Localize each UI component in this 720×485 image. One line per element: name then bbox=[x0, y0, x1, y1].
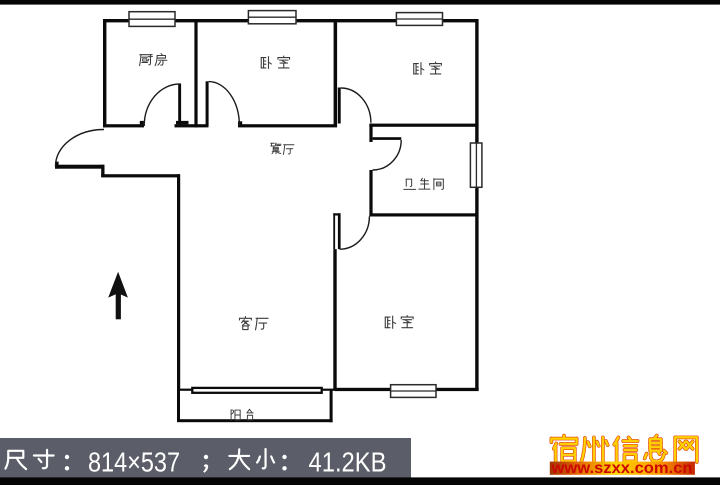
svg-text:814×537: 814×537 bbox=[88, 447, 180, 478]
svg-text:41.2KB: 41.2KB bbox=[309, 447, 387, 478]
svg-text:www.szxx.com.cn: www.szxx.com.cn bbox=[550, 460, 692, 477]
